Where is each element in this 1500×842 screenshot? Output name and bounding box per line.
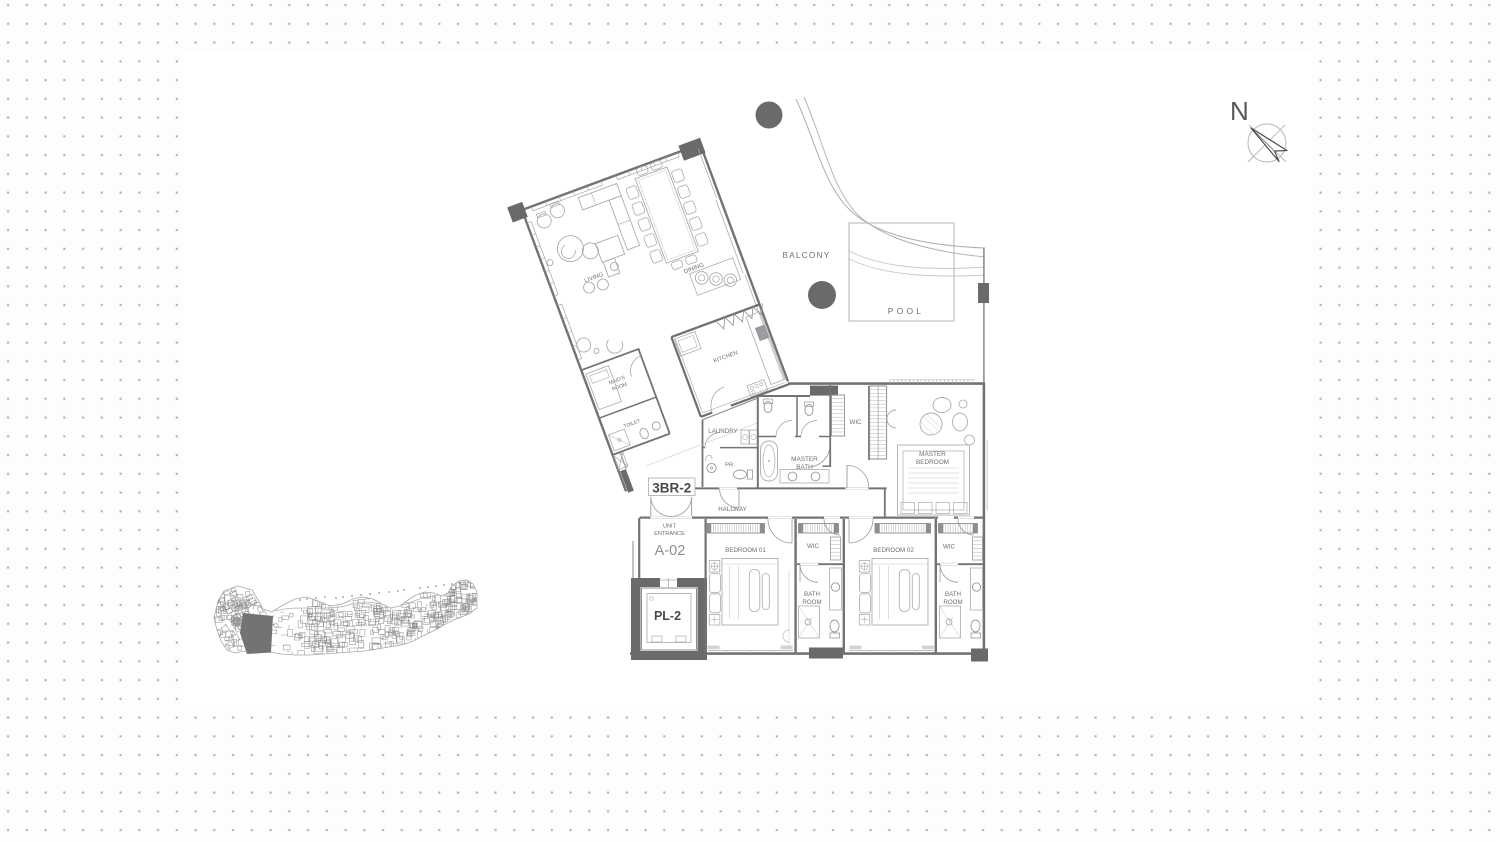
svg-text:N: N [1230, 96, 1249, 126]
svg-text:WIC: WIC [849, 419, 862, 426]
svg-text:BEDROOM: BEDROOM [916, 459, 949, 466]
svg-text:PL-2: PL-2 [654, 609, 681, 623]
svg-text:WIC: WIC [943, 544, 956, 551]
svg-text:WIC: WIC [807, 543, 820, 550]
svg-text:BEDROOM 01: BEDROOM 01 [725, 547, 766, 554]
svg-text:BATH: BATH [796, 464, 813, 471]
svg-text:ROOM: ROOM [802, 599, 821, 606]
svg-text:MASTER: MASTER [919, 451, 946, 458]
svg-text:ROOM: ROOM [943, 599, 962, 606]
svg-text:BEDROOM 02: BEDROOM 02 [873, 547, 914, 554]
svg-text:UNIT: UNIT [663, 524, 677, 530]
svg-text:PR.: PR. [725, 463, 735, 469]
svg-text:ENTRANCE: ENTRANCE [654, 531, 685, 537]
svg-text:3BR-2: 3BR-2 [652, 481, 691, 496]
svg-text:BALCONY: BALCONY [782, 251, 830, 260]
svg-text:POOL: POOL [888, 306, 924, 316]
svg-text:A-02: A-02 [655, 543, 686, 559]
svg-text:LAUNDRY: LAUNDRY [708, 428, 737, 435]
svg-text:BATH: BATH [945, 591, 961, 598]
svg-text:BATH: BATH [804, 591, 820, 598]
svg-text:MASTER: MASTER [791, 456, 818, 463]
